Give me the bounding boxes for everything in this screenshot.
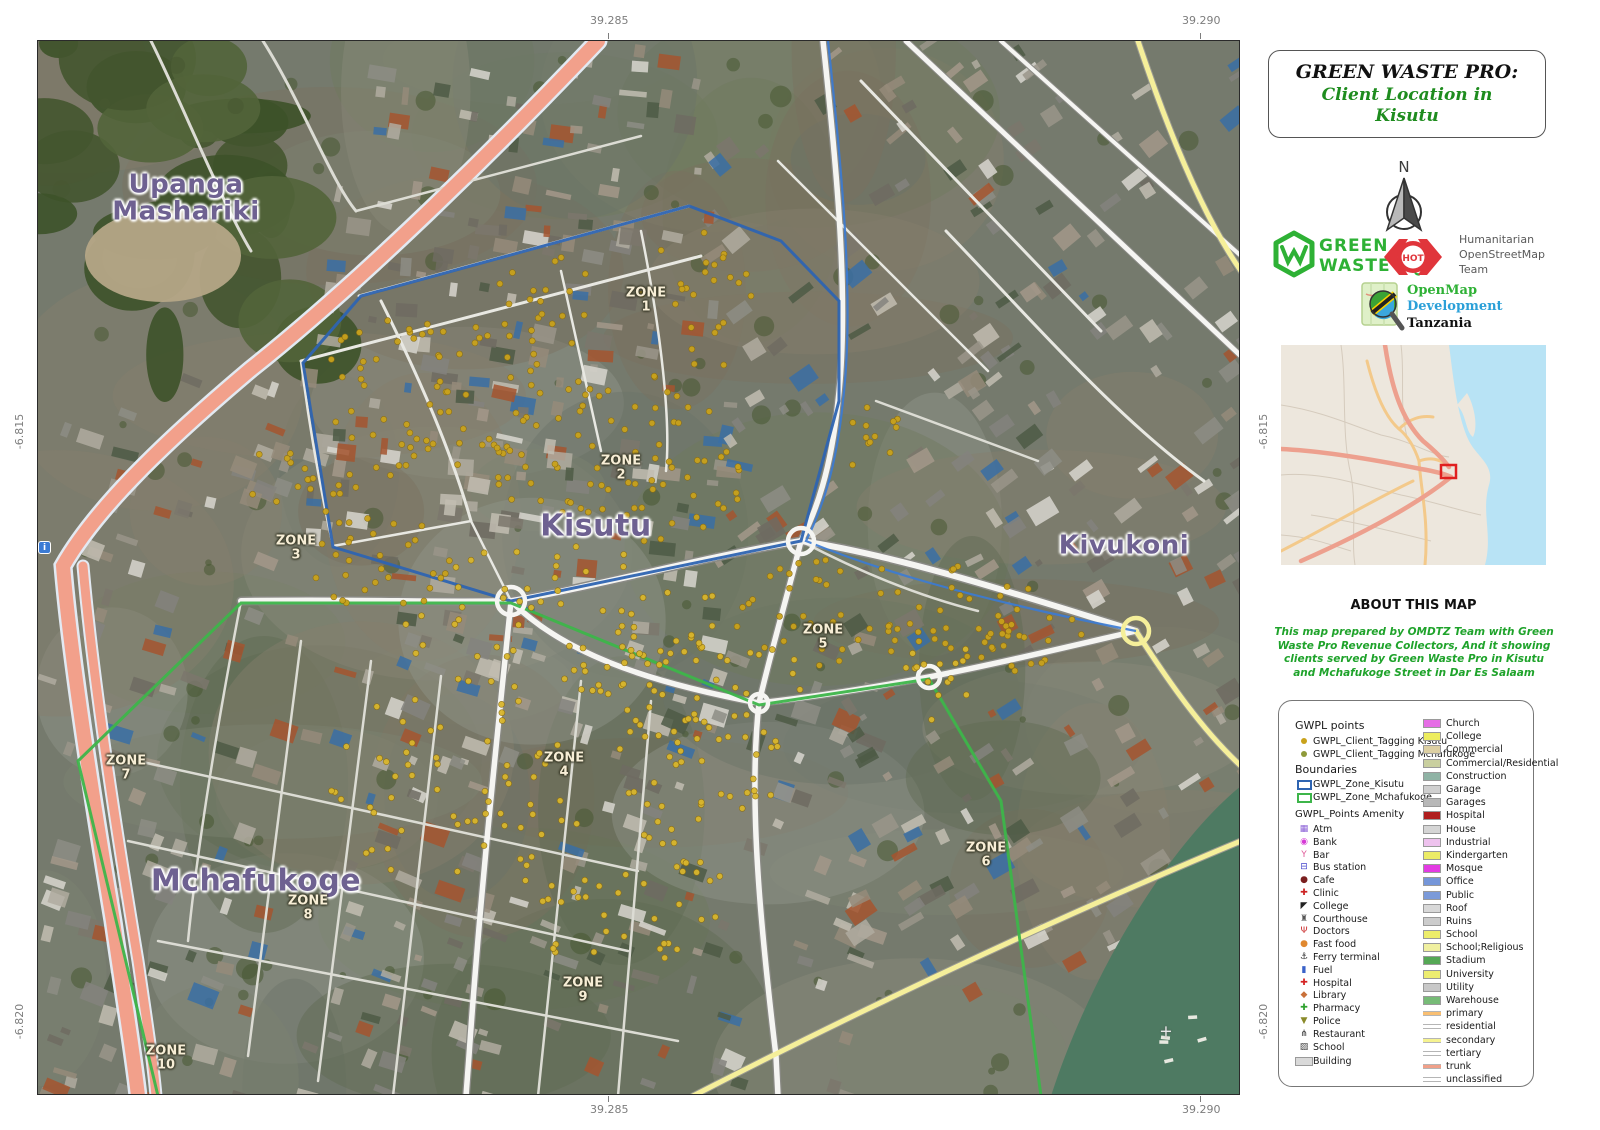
legend-left-column: GWPL points GWPL_Client_Tagging KisutuGW… bbox=[1295, 717, 1423, 1086]
legend-fill-item[interactable]: Commercial bbox=[1423, 743, 1558, 756]
map-title-line2: Client Location in bbox=[1322, 85, 1493, 106]
legend-amenity-item[interactable]: ●Cafe bbox=[1295, 874, 1423, 887]
legend-fill-item[interactable]: Kindergarten bbox=[1423, 849, 1558, 862]
fill-swatch bbox=[1423, 798, 1441, 807]
legend-item-label: Hospital bbox=[1313, 978, 1352, 989]
legend-item-label: School bbox=[1446, 929, 1478, 940]
legend-amenity-item[interactable]: YBar bbox=[1295, 849, 1423, 862]
legend-item-building[interactable]: Building bbox=[1295, 1056, 1423, 1069]
fill-swatch bbox=[1423, 719, 1441, 728]
tick-bottom-left bbox=[608, 1096, 609, 1102]
fill-swatch bbox=[1423, 785, 1441, 794]
graticule-cross-icon: + bbox=[1159, 1022, 1172, 1041]
legend-amenity-item[interactable]: ✚Pharmacy bbox=[1295, 1002, 1423, 1015]
legend-amenity-item[interactable]: ▼Police bbox=[1295, 1015, 1423, 1028]
legend-amenity-item[interactable]: ✚Clinic bbox=[1295, 887, 1423, 900]
info-marker-icon[interactable]: i bbox=[38, 541, 51, 554]
north-arrow: N bbox=[1372, 158, 1436, 238]
legend-item-label: Ferry terminal bbox=[1313, 952, 1380, 963]
main-map[interactable]: UpangaMasharikiKisutuKivukoniMchafukogeZ… bbox=[37, 40, 1240, 1095]
bar-icon: Y bbox=[1301, 851, 1307, 860]
hospital-icon: ✚ bbox=[1300, 979, 1308, 988]
school-icon: ▨ bbox=[1300, 1043, 1309, 1052]
about-heading: ABOUT THIS MAP bbox=[1281, 598, 1546, 613]
fill-swatch bbox=[1423, 917, 1441, 926]
fill-swatch bbox=[1423, 851, 1441, 860]
legend-fill-item[interactable]: Office bbox=[1423, 875, 1558, 888]
fill-swatch bbox=[1423, 772, 1441, 781]
legend-fill-item[interactable]: Ruins bbox=[1423, 915, 1558, 928]
legend-point-item[interactable]: GWPL_Client_Tagging Mchafukoge bbox=[1295, 748, 1423, 761]
fill-swatch bbox=[1423, 745, 1441, 754]
doctors-icon: Ψ bbox=[1300, 927, 1307, 936]
legend-amenity-header: GWPL_Points Amenity bbox=[1295, 809, 1423, 820]
legend-line-item[interactable]: secondary bbox=[1423, 1034, 1558, 1047]
legend-item-label: Police bbox=[1313, 1016, 1341, 1027]
legend-item-label: Kindergarten bbox=[1446, 850, 1508, 861]
svg-text:WASTE: WASTE bbox=[1319, 256, 1391, 276]
legend-item-label: Ruins bbox=[1446, 916, 1472, 927]
legend-amenity-item[interactable]: ΨDoctors bbox=[1295, 926, 1423, 939]
legend-points-header: GWPL points bbox=[1295, 719, 1423, 732]
inset-map-canvas bbox=[1281, 345, 1546, 565]
legend-fill-item[interactable]: School bbox=[1423, 928, 1558, 941]
legend-points-list: GWPL_Client_Tagging KisutuGWPL_Client_Ta… bbox=[1295, 735, 1423, 761]
legend-item-label: Office bbox=[1446, 876, 1474, 887]
fill-swatch bbox=[1423, 943, 1441, 952]
legend-item-label: Cafe bbox=[1313, 875, 1335, 886]
legend-item-label: School;Religious bbox=[1446, 942, 1524, 953]
zone-boundary-icon bbox=[1297, 793, 1312, 803]
omdtz-label: OpenMap Development Tanzania bbox=[1407, 283, 1503, 332]
svg-text:HOT: HOT bbox=[1402, 254, 1424, 264]
road-line-swatch bbox=[1423, 1038, 1441, 1043]
about-body-text: This map prepared by OMDTZ Team with Gre… bbox=[1272, 626, 1556, 681]
cafe-icon: ● bbox=[1300, 876, 1308, 885]
satellite-map-canvas bbox=[38, 41, 1240, 1095]
legend-item-label: Garages bbox=[1446, 797, 1486, 808]
fill-swatch bbox=[1423, 970, 1441, 979]
map-title-box: GREEN WASTE PRO: Client Location in Kisu… bbox=[1268, 50, 1546, 138]
coord-right-bottom: -6.820 bbox=[1257, 1004, 1270, 1039]
legend-item-label: Bus station bbox=[1313, 862, 1366, 873]
fill-swatch bbox=[1423, 891, 1441, 900]
legend-item-label: Doctors bbox=[1313, 926, 1350, 937]
map-title-line1: GREEN WASTE PRO: bbox=[1296, 61, 1518, 83]
legend-item-label: College bbox=[1446, 731, 1481, 742]
bus-station-icon: ⊟ bbox=[1300, 863, 1308, 872]
legend-item-label: Commercial bbox=[1446, 744, 1503, 755]
legend-item-label: Public bbox=[1446, 890, 1474, 901]
fill-swatch bbox=[1423, 811, 1441, 820]
fuel-icon: ▮ bbox=[1302, 966, 1307, 975]
tick-bottom-right bbox=[1200, 1096, 1201, 1102]
legend-right-column: ChurchCollegeCommercialCommercial/Reside… bbox=[1423, 717, 1558, 1086]
legend-amenity-item[interactable]: ⋔Restaurant bbox=[1295, 1028, 1423, 1041]
legend-fill-item[interactable]: Warehouse bbox=[1423, 994, 1558, 1007]
legend-item-label: Library bbox=[1313, 990, 1346, 1001]
legend-item-label: Bar bbox=[1313, 850, 1329, 861]
pharmacy-icon: ✚ bbox=[1300, 1004, 1308, 1013]
legend-amenities-list: ▦Atm◉BankYBar⊟Bus station●Cafe✚Clinic◤Co… bbox=[1295, 823, 1423, 1053]
legend-amenity-item[interactable]: ✚Hospital bbox=[1295, 977, 1423, 990]
legend-amenity-item[interactable]: ◆Library bbox=[1295, 990, 1423, 1003]
north-arrow-label: N bbox=[1372, 158, 1436, 176]
legend-item-label: Restaurant bbox=[1313, 1029, 1365, 1040]
legend-fill-item[interactable]: Garage bbox=[1423, 783, 1558, 796]
bank-icon: ◉ bbox=[1300, 838, 1308, 847]
legend-point-item[interactable]: GWPL_Client_Tagging Kisutu bbox=[1295, 735, 1423, 748]
legend-line-item[interactable]: tertiary bbox=[1423, 1047, 1558, 1060]
legend-item-label: secondary bbox=[1446, 1035, 1495, 1046]
legend-item-label: Church bbox=[1446, 718, 1480, 729]
library-icon: ◆ bbox=[1301, 991, 1308, 1000]
coord-top-right: 39.290 bbox=[1182, 14, 1221, 27]
legend-item-label: Garage bbox=[1446, 784, 1481, 795]
client-point-icon bbox=[1301, 751, 1307, 757]
legend-item-label: Building bbox=[1313, 1056, 1352, 1067]
legend-boundaries-list: GWPL_Zone_KisutuGWPL_Zone_Mchafukoge bbox=[1295, 779, 1423, 805]
fill-swatch bbox=[1423, 825, 1441, 834]
legend-boundary-item[interactable]: GWPL_Zone_Kisutu bbox=[1295, 779, 1423, 792]
legend-line-item[interactable]: trunk bbox=[1423, 1060, 1558, 1073]
legend-line-item[interactable]: primary bbox=[1423, 1007, 1558, 1020]
legend-fill-item[interactable]: University bbox=[1423, 968, 1558, 981]
legend-fill-item[interactable]: Industrial bbox=[1423, 836, 1558, 849]
legend-amenity-item[interactable]: ♜Courthouse bbox=[1295, 913, 1423, 926]
hot-logo: HOT bbox=[1382, 234, 1444, 280]
legend-item-label: Fuel bbox=[1313, 965, 1332, 976]
legend-fill-item[interactable]: Mosque bbox=[1423, 862, 1558, 875]
legend-item-label: Construction bbox=[1446, 771, 1507, 782]
legend-fill-item[interactable]: School;Religious bbox=[1423, 941, 1558, 954]
legend-item-label: Courthouse bbox=[1313, 914, 1368, 925]
legend-amenity-item[interactable]: ◤College bbox=[1295, 900, 1423, 913]
building-swatch bbox=[1295, 1057, 1313, 1066]
legend-fill-item[interactable]: Stadium bbox=[1423, 954, 1558, 967]
courthouse-icon: ♜ bbox=[1300, 915, 1308, 924]
legend-fill-item[interactable]: Garages bbox=[1423, 796, 1558, 809]
legend-item-label: University bbox=[1446, 969, 1494, 980]
clinic-icon: ✚ bbox=[1300, 889, 1308, 898]
fill-swatch bbox=[1423, 759, 1441, 768]
fill-swatch bbox=[1423, 877, 1441, 886]
legend-amenity-item[interactable]: ▨School bbox=[1295, 1041, 1423, 1054]
legend-item-label: Hospital bbox=[1446, 810, 1485, 821]
college-icon: ◤ bbox=[1301, 902, 1308, 911]
legend-item-label: School bbox=[1313, 1042, 1345, 1053]
legend-fill-item[interactable]: Construction bbox=[1423, 770, 1558, 783]
legend-fill-item[interactable]: Utility bbox=[1423, 981, 1558, 994]
fast-food-icon: ● bbox=[1300, 940, 1308, 949]
legend-amenity-item[interactable]: ◉Bank bbox=[1295, 836, 1423, 849]
legend-item-label: trunk bbox=[1446, 1061, 1471, 1072]
legend-item-label: Fast food bbox=[1313, 939, 1356, 950]
legend-amenity-item[interactable]: ▦Atm bbox=[1295, 823, 1423, 836]
road-line-swatch bbox=[1423, 1051, 1441, 1056]
legend-item-label: Utility bbox=[1446, 982, 1474, 993]
legend-line-item[interactable]: unclassified bbox=[1423, 1073, 1558, 1086]
legend-item-label: College bbox=[1313, 901, 1348, 912]
road-line-swatch bbox=[1423, 1011, 1441, 1016]
legend-lines-list: primaryresidentialsecondarytertiarytrunk… bbox=[1423, 1007, 1558, 1086]
fill-swatch bbox=[1423, 838, 1441, 847]
legend-item-label: Atm bbox=[1313, 824, 1332, 835]
coord-left-top: -6.815 bbox=[13, 414, 26, 449]
road-line-swatch bbox=[1423, 1024, 1441, 1029]
map-title-line3: Kisutu bbox=[1375, 106, 1438, 127]
atm-icon: ▦ bbox=[1300, 825, 1309, 834]
legend-item-label: Stadium bbox=[1446, 955, 1486, 966]
coord-bottom-left: 39.285 bbox=[590, 1103, 629, 1116]
road-line-swatch bbox=[1423, 1077, 1441, 1082]
legend-fill-item[interactable]: House bbox=[1423, 823, 1558, 836]
legend: GWPL points GWPL_Client_Tagging KisutuGW… bbox=[1278, 700, 1534, 1087]
legend-boundaries-header: Boundaries bbox=[1295, 763, 1423, 776]
fill-swatch bbox=[1423, 930, 1441, 939]
fill-swatch bbox=[1423, 732, 1441, 741]
zone-boundary-icon bbox=[1297, 780, 1312, 790]
coord-left-bottom: -6.820 bbox=[13, 1004, 26, 1039]
legend-fill-item[interactable]: Church bbox=[1423, 717, 1558, 730]
fill-swatch bbox=[1423, 956, 1441, 965]
legend-fill-item[interactable]: Public bbox=[1423, 888, 1558, 901]
legend-amenity-item[interactable]: ⊟Bus station bbox=[1295, 862, 1423, 875]
legend-item-label: tertiary bbox=[1446, 1048, 1481, 1059]
omdtz-logo bbox=[1358, 280, 1406, 332]
legend-item-label: primary bbox=[1446, 1008, 1483, 1019]
legend-item-label: Clinic bbox=[1313, 888, 1339, 899]
legend-fill-item[interactable]: College bbox=[1423, 730, 1558, 743]
legend-amenity-item[interactable]: ●Fast food bbox=[1295, 938, 1423, 951]
police-icon: ▼ bbox=[1301, 1017, 1308, 1026]
legend-line-item[interactable]: residential bbox=[1423, 1020, 1558, 1033]
road-line-swatch bbox=[1423, 1064, 1441, 1069]
fill-swatch bbox=[1423, 864, 1441, 873]
fill-swatch bbox=[1423, 904, 1441, 913]
coord-top-left: 39.285 bbox=[590, 14, 629, 27]
legend-amenity-item[interactable]: ▮Fuel bbox=[1295, 964, 1423, 977]
fill-swatch bbox=[1423, 983, 1441, 992]
legend-item-label: Industrial bbox=[1446, 837, 1491, 848]
coord-bottom-right: 39.290 bbox=[1182, 1103, 1221, 1116]
legend-item-label: Mosque bbox=[1446, 863, 1483, 874]
legend-fills-list: ChurchCollegeCommercialCommercial/Reside… bbox=[1423, 717, 1558, 1007]
legend-fill-item[interactable]: Hospital bbox=[1423, 809, 1558, 822]
legend-item-label: Pharmacy bbox=[1313, 1003, 1360, 1014]
legend-item-label: House bbox=[1446, 824, 1476, 835]
client-point-icon bbox=[1301, 738, 1307, 744]
legend-item-label: GWPL_Zone_Kisutu bbox=[1313, 779, 1404, 790]
restaurant-icon: ⋔ bbox=[1300, 1030, 1308, 1039]
legend-item-label: Bank bbox=[1313, 837, 1337, 848]
svg-text:GREEN: GREEN bbox=[1319, 236, 1389, 256]
legend-item-label: Commercial/Residential bbox=[1446, 758, 1558, 769]
legend-item-label: GWPL_Zone_Mchafukoge bbox=[1313, 792, 1432, 803]
legend-amenity-item[interactable]: ⚓Ferry terminal bbox=[1295, 951, 1423, 964]
legend-item-label: Roof bbox=[1446, 903, 1467, 914]
coord-right-top: -6.815 bbox=[1257, 414, 1270, 449]
legend-fill-item[interactable]: Commercial/Residential bbox=[1423, 757, 1558, 770]
legend-item-label: Warehouse bbox=[1446, 995, 1499, 1006]
tick-top-left bbox=[608, 33, 609, 39]
legend-item-label: residential bbox=[1446, 1021, 1496, 1032]
inset-overview-map[interactable] bbox=[1281, 345, 1546, 565]
legend-boundary-item[interactable]: GWPL_Zone_Mchafukoge bbox=[1295, 791, 1423, 804]
hot-team-label: Humanitarian OpenStreetMap Team bbox=[1459, 233, 1545, 278]
legend-fill-item[interactable]: Roof bbox=[1423, 902, 1558, 915]
tick-top-right bbox=[1200, 33, 1201, 39]
fill-swatch bbox=[1423, 996, 1441, 1005]
legend-item-label: unclassified bbox=[1446, 1074, 1502, 1085]
ferry-terminal-icon: ⚓ bbox=[1300, 953, 1308, 962]
